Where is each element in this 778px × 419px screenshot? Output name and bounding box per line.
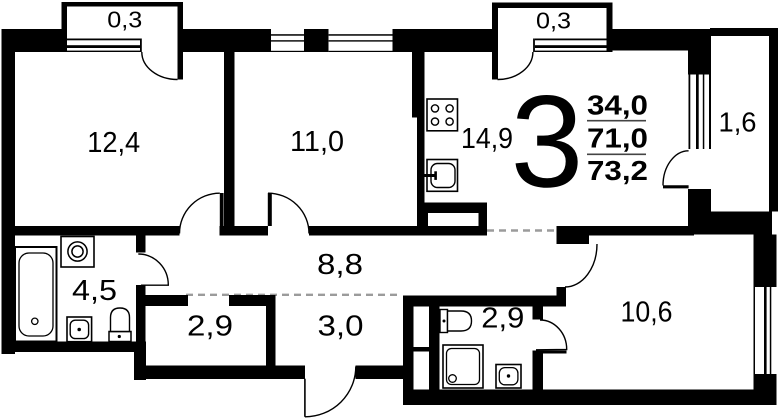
svg-text:2,9: 2,9 [187,311,233,343]
svg-text:8,8: 8,8 [317,249,363,281]
svg-text:10,6: 10,6 [621,297,673,329]
svg-text:71,0: 71,0 [587,123,648,154]
svg-text:12,4: 12,4 [87,127,140,159]
svg-text:0,3: 0,3 [536,8,571,34]
svg-text:0,3: 0,3 [107,7,142,33]
svg-text:34,0: 34,0 [587,90,648,121]
svg-text:73,2: 73,2 [587,155,648,186]
svg-text:14,9: 14,9 [461,123,513,155]
svg-text:11,0: 11,0 [290,126,344,158]
svg-text:3: 3 [511,68,584,215]
svg-text:4,5: 4,5 [72,275,117,307]
svg-text:3,0: 3,0 [318,311,364,343]
svg-text:2,9: 2,9 [481,303,524,335]
svg-text:1,6: 1,6 [719,107,757,138]
